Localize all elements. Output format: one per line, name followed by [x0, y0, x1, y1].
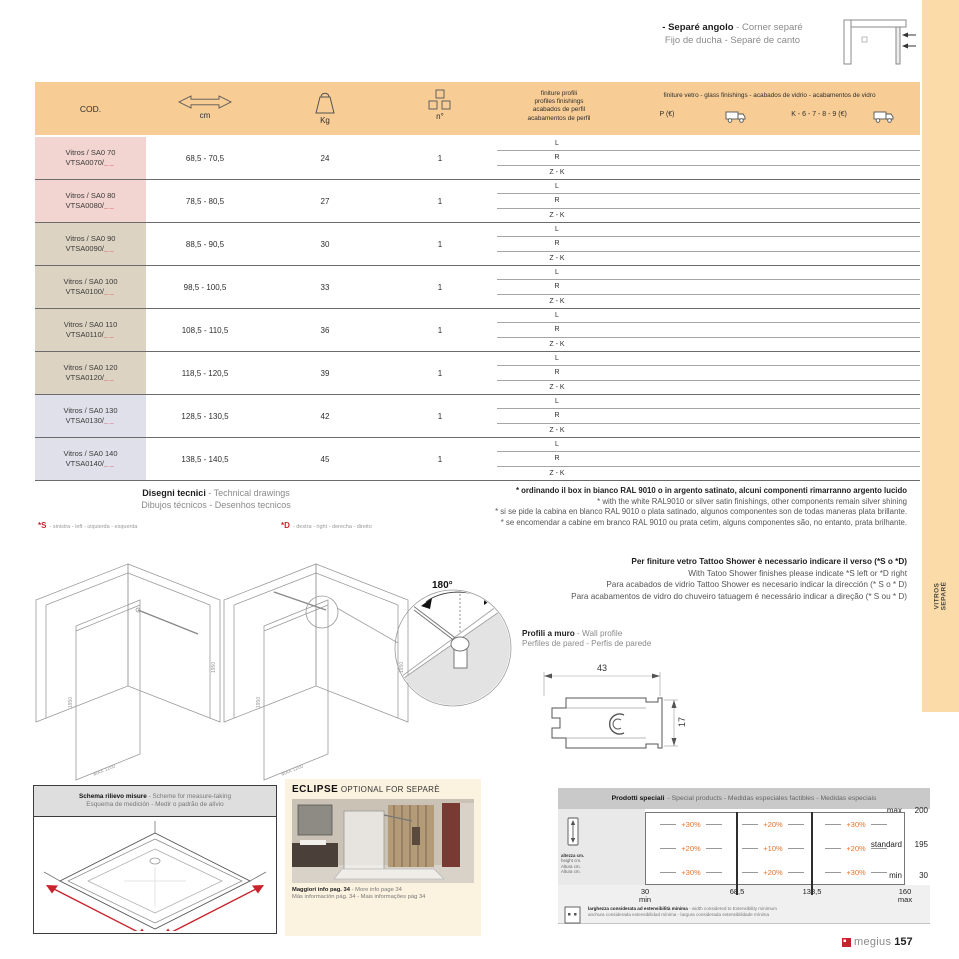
package-count: 1 — [386, 137, 494, 179]
finish-option: Z - K — [533, 169, 581, 176]
finish-option: L — [533, 312, 581, 319]
code-prefix: VTSA0120/ — [66, 373, 104, 382]
wall-profile-title: Profili a muro - Wall profile Perfiles d… — [522, 629, 651, 648]
product-code: VTSA0100/__ — [66, 287, 116, 297]
grid-cell: +30% — [646, 860, 736, 884]
height-dim-label: 1950 — [68, 697, 74, 708]
shower-tray-drawing — [34, 819, 276, 931]
grid-cell: +20% — [736, 860, 810, 884]
profiles-line: finiture profili — [497, 90, 621, 98]
grid-cell: +10% — [736, 837, 810, 861]
right-orientation-note: *D- destra - right - derecha - direito — [281, 521, 372, 530]
finish-rows: L R Z - K — [497, 309, 920, 351]
product-code-cell: Vitros / SA0 90 VTSA0090/__ — [35, 223, 146, 265]
profiles-line: acabamentos de perfil — [497, 115, 621, 123]
side-band: VITROS SEPARÈ — [922, 0, 959, 712]
width-range: 118,5 - 120,5 — [146, 352, 264, 394]
finish-option: L — [533, 355, 581, 362]
finish-option: Z - K — [533, 212, 581, 219]
table-row: Vitros / SA0 130 VTSA0130/__ 128,5 - 130… — [35, 395, 920, 438]
finish-option: L — [533, 441, 581, 448]
ral-line1: * ordinando il box in bianco RAL 9010 o … — [430, 486, 907, 497]
grid-cell: +30% — [646, 813, 736, 837]
finish-option: Z - K — [533, 384, 581, 391]
product-table: COD. cm Kg n° — [35, 82, 920, 481]
profiles-line: acabados de perfil — [497, 106, 621, 114]
tattoo-line1: Per finiture vetro Tattoo Shower è neces… — [430, 556, 907, 568]
finish-option: R — [533, 412, 581, 419]
mark-s: *S — [38, 521, 46, 530]
special-title-it: Prodotti speciali — [612, 795, 665, 802]
drawings-title-it: Disegni tecnici — [142, 488, 206, 498]
finish-option: R — [533, 154, 581, 161]
finish-option: L — [533, 140, 581, 147]
width-range: 138,5 - 140,5 — [146, 438, 264, 480]
wall-profile-subtitle: Perfiles de pared - Perfis de parede — [522, 639, 651, 648]
code-prefix: VTSA0090/ — [66, 244, 104, 253]
code-prefix: VTSA0100/ — [66, 287, 104, 296]
corner-note-title: - Separé angolo — [662, 22, 733, 33]
height-label: height cm. — [561, 858, 584, 863]
finish-option: L — [533, 226, 581, 233]
code-prefix: VTSA0110/ — [66, 330, 104, 339]
weight-value: 42 — [264, 395, 386, 437]
product-code-cell: Vitros / SA0 70 VTSA0070/__ — [35, 137, 146, 179]
weight-value: 27 — [264, 180, 386, 222]
header-cod: COD. — [35, 82, 146, 135]
package-count: 1 — [386, 438, 494, 480]
height-dim-label: 1950 — [399, 662, 405, 673]
width-range: 68,5 - 70,5 — [146, 137, 264, 179]
table-row: Vitros / SA0 120 VTSA0120/__ 118,5 - 120… — [35, 352, 920, 395]
technical-drawings-title: Disegni tecnici - Technical drawings Dib… — [35, 488, 397, 510]
brand-name: megius — [854, 936, 891, 948]
product-code-cell: Vitros / SA0 130 VTSA0130/__ — [35, 395, 146, 437]
product-code-cell: Vitros / SA0 140 VTSA0140/__ — [35, 438, 146, 480]
product-code: VTSA0110/__ — [66, 330, 115, 340]
page-footer: megius 157 — [842, 936, 913, 948]
height-dim-label: 1950 — [211, 662, 217, 673]
weight-value: 45 — [264, 438, 386, 480]
special-title-rest: - Special products - Medidas especiales … — [667, 795, 876, 802]
code-prefix: VTSA0130/ — [66, 416, 104, 425]
weight-value: 39 — [264, 352, 386, 394]
finish-option: R — [533, 240, 581, 247]
special-products-body: altezza cm. height cm. Altura cm. Altura… — [558, 809, 930, 885]
grid-divider — [736, 812, 738, 895]
tattoo-line3: Para acabados de vidrio Tattoo Shower es… — [430, 579, 907, 591]
weight-icon — [308, 89, 342, 115]
product-code-cell: Vitros / SA0 100 VTSA0100/__ — [35, 266, 146, 308]
finish-rows: L R Z - K — [497, 352, 920, 394]
header-kg-label: Kg — [320, 116, 330, 125]
scheme-title-it: Schema rilievo misure — [79, 793, 147, 800]
height-labels-panel: altezza cm. height cm. Altura cm. Altura… — [558, 809, 645, 885]
corner-note-subtitle: Fijo de ducha - Separé de canto — [630, 35, 835, 46]
package-count: 1 — [386, 395, 494, 437]
finish-option: Z - K — [533, 255, 581, 262]
finish-option: L — [533, 269, 581, 276]
code-blank: __ — [104, 287, 115, 296]
width-range: 78,5 - 80,5 — [146, 180, 264, 222]
table-row: Vitros / SA0 80 VTSA0080/__ 78,5 - 80,5 … — [35, 180, 920, 223]
eclipse-caption-en: - More info page 34 — [350, 887, 402, 893]
section-tab: VITROS SEPARÈ — [922, 556, 959, 636]
grid-cell: +20% — [736, 813, 810, 837]
code-blank: __ — [104, 201, 115, 210]
code-prefix: VTSA0070/ — [66, 158, 104, 167]
header-glass-finishings: finiture vetro - glass finishings - acab… — [623, 92, 916, 99]
max-width-label: MAX 1200 — [281, 763, 305, 777]
package-count: 1 — [386, 266, 494, 308]
product-name: Vitros / SA0 120 — [63, 363, 117, 373]
code-blank: __ — [104, 459, 115, 468]
header-cm-label: cm — [200, 111, 211, 120]
width-arrows-icon — [177, 94, 233, 110]
tattoo-line4: Para acabamentos de vidro do chuveiro ta… — [430, 591, 907, 603]
code-blank: __ — [104, 416, 115, 425]
megius-logo-icon — [842, 938, 851, 947]
extensibility-grid: +30% +20% +30% +20% +10% +20% +30% +20% … — [645, 812, 905, 885]
product-code: VTSA0120/__ — [66, 373, 116, 383]
eclipse-box: ECLIPSE OPTIONAL FOR SEPARÈ Maggiori inf… — [285, 779, 481, 936]
ral-note: * ordinando il box in bianco RAL 9010 o … — [430, 486, 907, 528]
product-code: VTSA0130/__ — [66, 416, 116, 426]
truck-icon — [873, 109, 895, 123]
finish-rows: L R Z - K — [497, 395, 920, 437]
mark-s-text: - sinistra - left - izquierda - esquerda — [49, 524, 137, 530]
price-k-label: K - 6 - 7 - 8 - 9 (€) — [773, 111, 865, 118]
product-code: VTSA0070/__ — [66, 158, 116, 168]
finish-option: R — [533, 369, 581, 376]
table-row: Vitros / SA0 110 VTSA0110/__ 108,5 - 110… — [35, 309, 920, 352]
grid-cell: +30% — [810, 813, 902, 837]
width-range: 88,5 - 90,5 — [146, 223, 264, 265]
weight-value: 36 — [264, 309, 386, 351]
special-products-table: Prodotti speciali - Special products - M… — [558, 788, 930, 924]
eclipse-caption-it: Maggiori info pag. 34 — [292, 887, 350, 893]
width-note: larghezza considerata ad estensibilità m… — [564, 906, 777, 924]
left-orientation-note: *S- sinistra - left - izquierda - esquer… — [38, 521, 138, 530]
height-dim-label: 1950 — [256, 697, 262, 708]
product-code: VTSA0140/__ — [66, 459, 116, 469]
catalog-page: VITROS SEPARÈ - Separé angolo - Corner s… — [0, 0, 959, 959]
eclipse-photo — [292, 799, 474, 883]
finish-option: L — [533, 183, 581, 190]
height-icon — [565, 817, 581, 847]
wall-profile-title-it: Profili a muro — [522, 629, 575, 638]
glass-finishings-label: finiture vetro - glass finishings - acab… — [623, 92, 916, 99]
finish-option: R — [533, 326, 581, 333]
weight-value: 33 — [264, 266, 386, 308]
finish-option: L — [533, 398, 581, 405]
table-row: Vitros / SA0 90 VTSA0090/__ 88,5 - 90,5 … — [35, 223, 920, 266]
finish-option: Z - K — [533, 341, 581, 348]
package-count: 1 — [386, 180, 494, 222]
price-p-label: P (€) — [645, 111, 689, 118]
weight-value: 30 — [264, 223, 386, 265]
header-weight: Kg — [264, 89, 386, 125]
package-count: 1 — [386, 352, 494, 394]
wall-profile-drawing: 43 17 — [520, 658, 688, 766]
finish-option: R — [533, 283, 581, 290]
scheme-subtitle: Esquema de medición - Medir o padrão de … — [86, 801, 223, 809]
axis-tick: 160max — [883, 888, 927, 904]
eclipse-caption2: Más información pág. 34 - Mais informaçõ… — [292, 894, 481, 901]
table-row: Vitros / SA0 70 VTSA0070/__ 68,5 - 70,5 … — [35, 137, 920, 180]
width-axis-strip: 30min 68,5 138,5 160max larghezza consid… — [558, 885, 930, 924]
grid-cell: +30% — [810, 860, 902, 884]
width-range: 98,5 - 100,5 — [146, 266, 264, 308]
finish-rows: L R Z - K — [497, 180, 920, 222]
width-min-icon — [564, 906, 582, 924]
wall-profile-title-en: - Wall profile — [575, 629, 622, 638]
profiles-line: profiles finishings — [497, 98, 621, 106]
height-unit-labels: altezza cm. height cm. Altura cm. Altura… — [561, 853, 584, 874]
ral-line2: * with the white RAL9010 or silver satin… — [430, 497, 907, 508]
header-width: cm — [146, 94, 264, 120]
product-name: Vitros / SA0 80 — [66, 191, 116, 201]
table-row: Vitros / SA0 100 VTSA0100/__ 98,5 - 100,… — [35, 266, 920, 309]
product-code: VTSA0090/__ — [66, 244, 116, 254]
finish-rows: L R Z - K — [497, 438, 920, 480]
finish-option: Z - K — [533, 427, 581, 434]
code-blank: __ — [104, 158, 115, 167]
product-name: Vitros / SA0 130 — [63, 406, 117, 416]
package-count: 1 — [386, 223, 494, 265]
finish-rows: L R Z - K — [497, 266, 920, 308]
product-code-cell: Vitros / SA0 120 VTSA0120/__ — [35, 352, 146, 394]
profile-width-dim: 43 — [597, 663, 607, 673]
axis-tick: 30min — [623, 888, 667, 904]
header-count: n° — [386, 89, 494, 121]
product-code-cell: Vitros / SA0 80 VTSA0080/__ — [35, 180, 146, 222]
table-row: Vitros / SA0 140 VTSA0140/__ 138,5 - 140… — [35, 438, 920, 481]
eclipse-title: ECLIPSE — [292, 784, 338, 795]
table-body: Vitros / SA0 70 VTSA0070/__ 68,5 - 70,5 … — [35, 137, 920, 481]
mark-d-text: - destra - right - derecha - direito — [293, 524, 372, 530]
weight-value: 24 — [264, 137, 386, 179]
section-tab-line2: SEPARÈ — [941, 582, 948, 611]
finish-option: R — [533, 455, 581, 462]
profile-height-dim: 17 — [677, 717, 687, 727]
code-prefix: VTSA0140/ — [66, 459, 104, 468]
finish-rows: L R Z - K — [497, 223, 920, 265]
finish-option: R — [533, 197, 581, 204]
code-blank: __ — [104, 330, 115, 339]
header-profile-finishings: finiture profili profiles finishings aca… — [497, 90, 621, 123]
product-name: Vitros / SA0 140 — [63, 449, 117, 459]
drawings-title-en: - Technical drawings — [206, 488, 290, 498]
measure-scheme-header: Schema rilievo misure - Scheme for measu… — [33, 785, 277, 817]
table-header: COD. cm Kg n° — [35, 82, 920, 135]
product-name: Vitros / SA0 70 — [66, 148, 116, 158]
product-name: Vitros / SA0 100 — [63, 277, 117, 287]
scheme-title-en: - Scheme for measure-taking — [147, 793, 231, 800]
product-name: Vitros / SA0 90 — [66, 234, 116, 244]
eclipse-title-rest: OPTIONAL FOR SEPARÈ — [338, 785, 440, 794]
header-n-label: n° — [436, 112, 444, 121]
tattoo-shower-note: Per finiture vetro Tattoo Shower è neces… — [430, 556, 907, 602]
product-code-cell: Vitros / SA0 110 VTSA0110/__ — [35, 309, 146, 351]
grid-divider — [811, 812, 813, 895]
height-label: Altura cm. — [561, 869, 584, 874]
grid-cell: +20% — [646, 837, 736, 861]
corner-topview-diagram — [838, 10, 922, 70]
grid-cell: +20% — [810, 837, 902, 861]
finish-option: Z - K — [533, 298, 581, 305]
width-range: 108,5 - 110,5 — [146, 309, 264, 351]
finish-rows: L R Z - K — [497, 137, 920, 179]
width-note2: anchura considerada extensibilidad mínim… — [588, 912, 777, 918]
code-blank: __ — [104, 373, 115, 382]
product-name: Vitros / SA0 110 — [64, 320, 118, 330]
finish-option: Z - K — [533, 470, 581, 477]
mark-d: *D — [281, 521, 290, 530]
code-blank: __ — [104, 244, 115, 253]
ral-line3: * si se pide la cabina en blanco RAL 901… — [430, 507, 907, 518]
drawings-subtitle: Dibujos técnicos - Desenhos tecnicos — [35, 500, 397, 510]
corner-note-title-en: - Corner separé — [734, 22, 803, 33]
product-code: VTSA0080/__ — [66, 201, 116, 211]
width-note-en: - width considered to Extensibility mini… — [688, 906, 777, 911]
ral-line4: * se encomendar a cabine em branco RAL 9… — [430, 518, 907, 529]
corner-note: - Separé angolo - Corner separé Fijo de … — [630, 22, 835, 46]
tattoo-line2: With Tatoo Shower finishes please indica… — [430, 568, 907, 580]
package-count-icon — [425, 89, 455, 111]
measure-scheme-box: Schema rilievo misure - Scheme for measu… — [33, 785, 277, 934]
measure-scheme-drawing-area — [33, 817, 277, 934]
package-count: 1 — [386, 309, 494, 351]
max-width-label: MAX 1200 — [93, 763, 117, 777]
page-number: 157 — [894, 936, 912, 948]
code-prefix: VTSA0080/ — [66, 201, 104, 210]
truck-icon — [725, 109, 747, 123]
width-range: 128,5 - 130,5 — [146, 395, 264, 437]
width-note-it: larghezza considerata ad estensibilità m… — [588, 906, 688, 911]
